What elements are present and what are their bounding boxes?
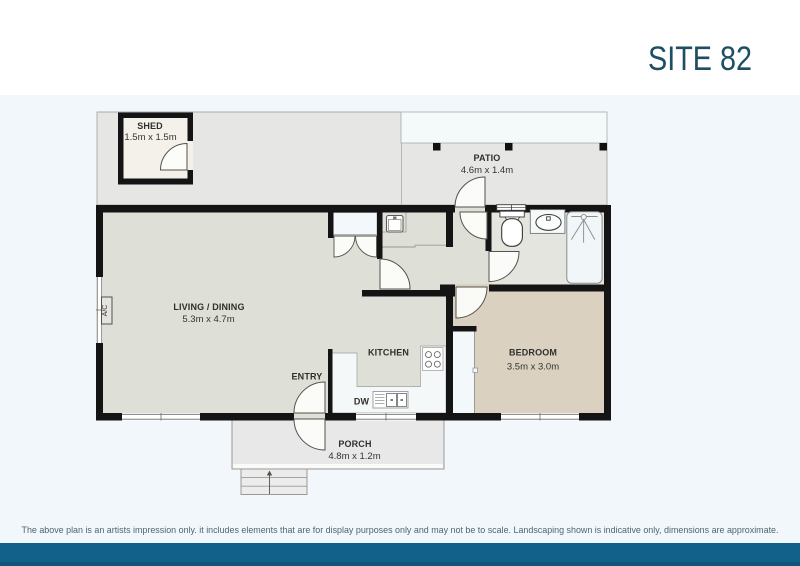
svg-text:DW: DW — [354, 397, 370, 407]
svg-text:BEDROOM: BEDROOM — [509, 348, 557, 358]
svg-text:SHED: SHED — [137, 121, 163, 131]
svg-text:1.5m x 1.5m: 1.5m x 1.5m — [124, 132, 176, 143]
svg-text:SITE 82: SITE 82 — [648, 40, 752, 78]
svg-text:PATIO: PATIO — [474, 153, 501, 163]
svg-text:The above plan is an artists i: The above plan is an artists impression … — [22, 525, 779, 535]
svg-text:ENTRY: ENTRY — [292, 372, 323, 382]
svg-text:4.8m x 1.2m: 4.8m x 1.2m — [328, 451, 380, 462]
svg-text:LIVING / DINING: LIVING / DINING — [173, 302, 244, 312]
svg-text:A/C: A/C — [102, 305, 109, 317]
svg-text:3.5m x 3.0m: 3.5m x 3.0m — [507, 362, 559, 373]
svg-text:5.3m x 4.7m: 5.3m x 4.7m — [182, 314, 234, 325]
svg-text:KITCHEN: KITCHEN — [368, 348, 409, 358]
svg-text:4.6m x 1.4m: 4.6m x 1.4m — [461, 165, 513, 176]
svg-text:PORCH: PORCH — [338, 439, 371, 449]
